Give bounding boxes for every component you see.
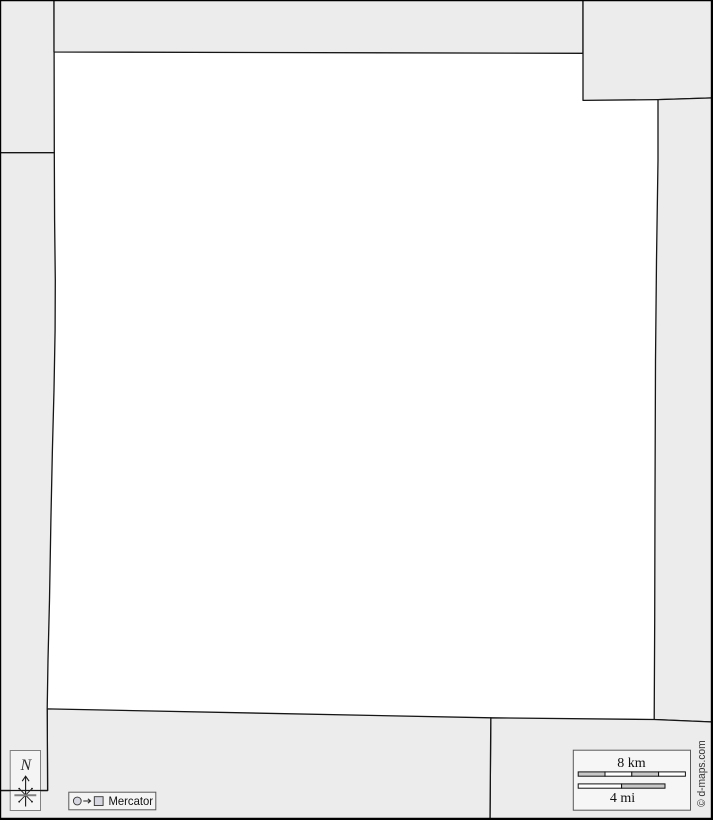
svg-text:© d-maps.com: © d-maps.com [696, 740, 708, 807]
svg-text:N: N [19, 757, 32, 774]
svg-text:4 mi: 4 mi [610, 791, 635, 806]
svg-text:Mercator: Mercator [109, 794, 154, 808]
svg-text:8 km: 8 km [617, 756, 646, 771]
